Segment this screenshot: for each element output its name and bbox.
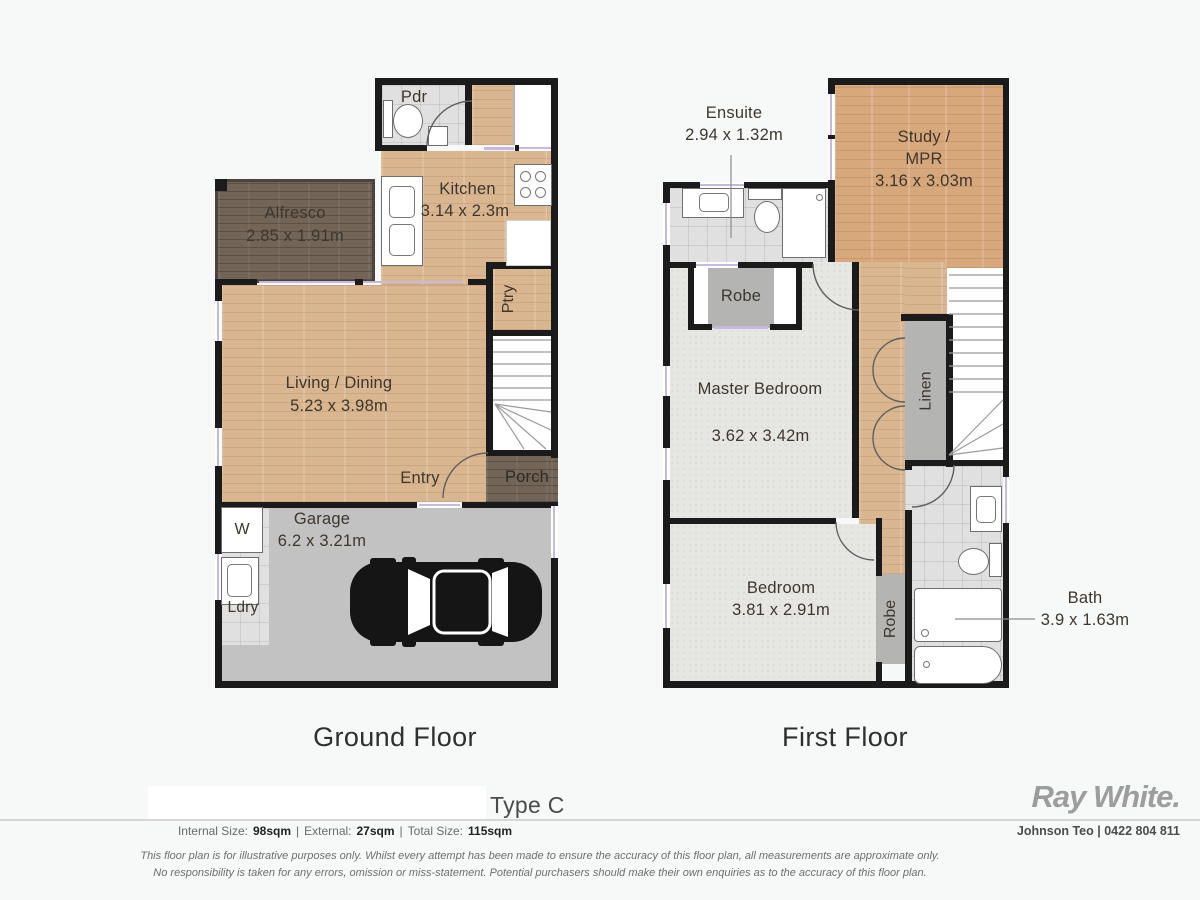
window: [663, 203, 670, 245]
room-label-bedroom: Bedroom: [711, 578, 851, 599]
room-label-pdr: Pdr: [390, 87, 438, 108]
wall: [688, 324, 712, 330]
wall: [486, 450, 558, 456]
room-label-ensuite: Ensuite: [671, 103, 797, 124]
master-door-opening: [813, 262, 853, 268]
room-dim-study: 3.16 x 3.03m: [854, 171, 994, 192]
wall: [375, 78, 382, 151]
room-dim-garage: 6.2 x 3.21m: [257, 531, 387, 552]
vanity-icon: [682, 188, 744, 218]
wall: [876, 518, 882, 576]
window: [663, 448, 670, 480]
car-icon: [346, 556, 546, 648]
plan-type-label: Type C: [490, 792, 565, 819]
room-label-bedroom-robe: Robe: [876, 574, 906, 664]
wall: [462, 502, 552, 508]
sliding-door: [259, 281, 355, 283]
wall: [905, 510, 912, 688]
footer-divider: [0, 819, 1200, 821]
disclaimer-line-1: This floor plan is for illustrative purp…: [60, 850, 1020, 862]
wall: [486, 330, 558, 336]
robe-shelf: [774, 268, 796, 328]
wall: [375, 145, 427, 151]
size-summary: Internal Size:98sqm | External:27sqm | T…: [165, 824, 525, 838]
window: [828, 139, 835, 180]
room-dim-bath: 3.9 x 1.63m: [1025, 610, 1145, 631]
wall: [663, 518, 836, 524]
window: [551, 506, 558, 558]
sink-bowl-icon: [389, 224, 415, 256]
wall: [486, 330, 493, 456]
room-label-laundry: Ldry: [218, 597, 268, 618]
room-label-study: Study /: [859, 127, 989, 148]
first-floor-title: First Floor: [720, 722, 970, 753]
disclaimer-line-2: No responsibility is taken for any error…: [60, 867, 1020, 879]
room-label-alfresco: Alfresco: [235, 203, 355, 224]
redacted-address: [148, 786, 486, 820]
room-label-living: Living / Dining: [249, 373, 429, 394]
basin-icon: [428, 126, 448, 146]
total-size-value: 115sqm: [468, 824, 512, 838]
total-size-label: Total Size:: [408, 824, 463, 838]
closet: [513, 85, 551, 145]
shower-icon: [782, 188, 826, 258]
plan-linework: [0, 0, 1200, 900]
wall: [770, 324, 802, 330]
floorplan-canvas: W Pdr Kitchen 3.14 x 2.3m Alfresco 2.85 …: [0, 0, 1200, 900]
agent-contact: Johnson Teo | 0422 804 811: [940, 824, 1180, 838]
window: [519, 145, 553, 151]
ensuite-door-slider: [696, 262, 738, 268]
internal-size-value: 98sqm: [253, 824, 291, 838]
wall: [688, 262, 694, 330]
room-label-master-robe: Robe: [708, 286, 774, 307]
window: [663, 366, 670, 396]
tub-icon: [914, 646, 1002, 684]
hall-floor: [472, 85, 513, 145]
wall: [828, 78, 1009, 85]
sliding-door: [714, 326, 768, 329]
room-dim-master: 3.62 x 3.42m: [688, 426, 833, 447]
sliding-door: [484, 147, 514, 150]
alfresco-post: [215, 179, 227, 191]
wall: [905, 460, 912, 470]
room-label-kitchen: Kitchen: [405, 179, 530, 200]
ground-floor-title: Ground Floor: [270, 722, 520, 753]
room-label-garage: Garage: [257, 509, 387, 530]
wall: [551, 78, 558, 688]
window: [828, 94, 835, 135]
ff-stairs-floor: [947, 268, 1003, 460]
room-label-entry: Entry: [390, 468, 450, 489]
toilet-cistern-icon: [748, 188, 782, 200]
room-label-study-2: MPR: [859, 149, 989, 170]
wall: [215, 681, 558, 688]
room-label-linen: Linen: [905, 321, 948, 461]
toilet-icon: [393, 104, 423, 138]
wall: [852, 262, 859, 518]
external-size-value: 27sqm: [357, 824, 395, 838]
ray-white-logo: Ray White.: [990, 779, 1180, 815]
window: [1003, 477, 1009, 523]
sliding-door: [363, 281, 463, 283]
room-label-pantry: Ptry: [494, 270, 524, 328]
kitchen-bench: [506, 220, 551, 266]
wall: [486, 262, 493, 336]
separator: |: [296, 824, 299, 838]
room-label-bath: Bath: [1040, 588, 1130, 609]
room-label-porch: Porch: [495, 467, 559, 488]
gf-stairs-floor: [493, 336, 551, 450]
wall: [468, 279, 492, 285]
toilet-cistern-icon: [989, 543, 1002, 577]
wall: [1003, 78, 1009, 688]
wall: [796, 262, 802, 330]
room-dim-kitchen: 3.14 x 2.3m: [400, 201, 530, 222]
window: [663, 584, 670, 628]
entry-door-threshold: [419, 502, 460, 508]
external-size-label: External:: [304, 824, 351, 838]
wall: [355, 279, 363, 285]
vanity-icon: [970, 486, 1002, 532]
window: [215, 428, 222, 466]
room-dim-ensuite: 2.94 x 1.32m: [664, 125, 804, 146]
room-dim-bedroom: 3.81 x 2.91m: [706, 600, 856, 621]
toilet-icon: [958, 548, 989, 575]
wall: [465, 84, 472, 145]
toilet-icon: [754, 201, 780, 233]
separator: |: [400, 824, 403, 838]
internal-size-label: Internal Size:: [178, 824, 248, 838]
bathtub-icon: [914, 588, 1002, 642]
room-dim-living: 5.23 x 3.98m: [244, 396, 434, 417]
washer-label: W: [234, 521, 249, 539]
room-dim-alfresco: 2.85 x 1.91m: [230, 226, 360, 247]
window: [215, 301, 222, 341]
room-label-master: Master Bedroom: [695, 379, 825, 400]
